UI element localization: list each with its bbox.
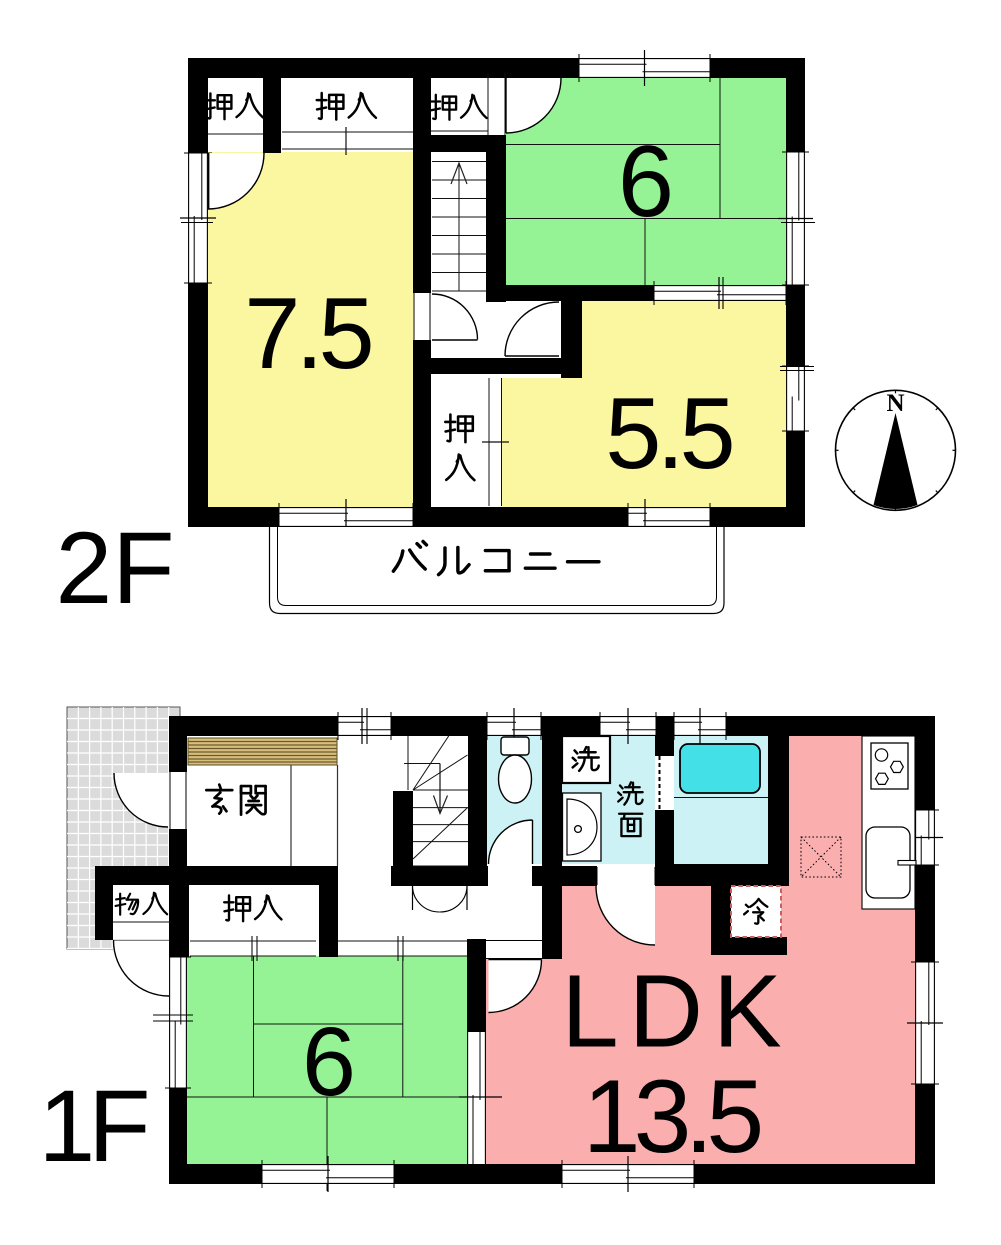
svg-text:6: 6 [618,126,674,238]
svg-text:6: 6 [302,1007,356,1116]
svg-text:5.5: 5.5 [605,378,731,490]
svg-text:7.5: 7.5 [244,278,370,390]
svg-text:2F: 2F [55,511,174,625]
svg-text:1F: 1F [38,1069,147,1183]
svg-text:N: N [886,390,904,417]
svg-text:13.5: 13.5 [583,1059,761,1175]
svg-text:LDK: LDK [561,954,791,1069]
